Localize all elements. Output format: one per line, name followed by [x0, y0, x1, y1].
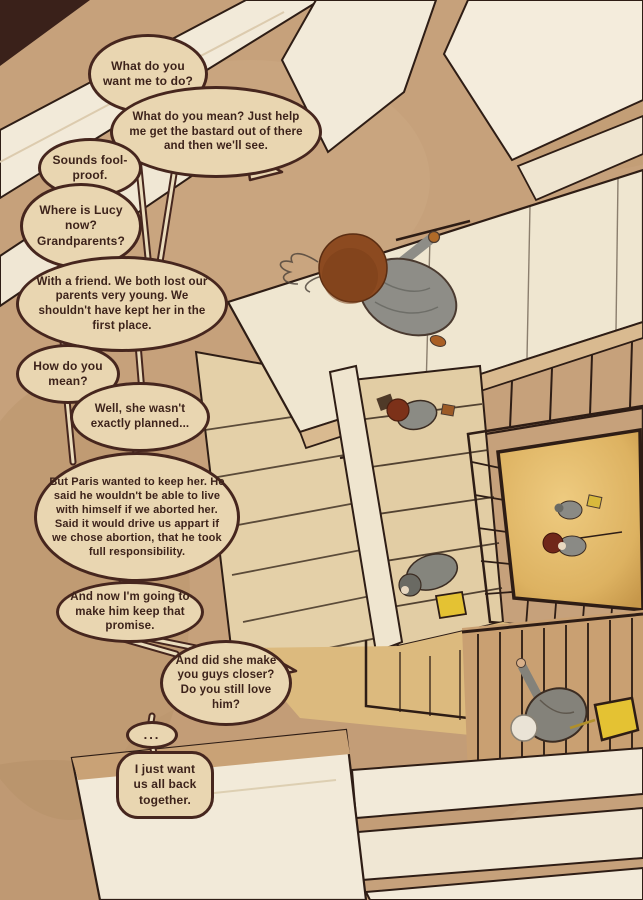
- ground-floor: [498, 430, 643, 610]
- speech-bubble: Well, she wasn't exactly planned...: [70, 382, 210, 452]
- speech-bubble: I just want us all back together.: [116, 751, 214, 819]
- speech-bubble: And now I'm going to make him keep that …: [56, 581, 204, 643]
- speech-bubble: With a friend. We both lost our parents …: [16, 256, 228, 352]
- speech-bubble: What do you mean? Just help me get the b…: [110, 86, 322, 178]
- speech-bubble: ...: [126, 721, 178, 749]
- yellow-bag-small: [436, 592, 466, 618]
- white-hair: [511, 715, 537, 741]
- speech-bubble: But Paris wanted to keep her. He said he…: [34, 452, 240, 582]
- speech-bubble: And did she make you guys closer? Do you…: [160, 640, 292, 726]
- comic-page: What do you want me to do? What do you m…: [0, 0, 643, 900]
